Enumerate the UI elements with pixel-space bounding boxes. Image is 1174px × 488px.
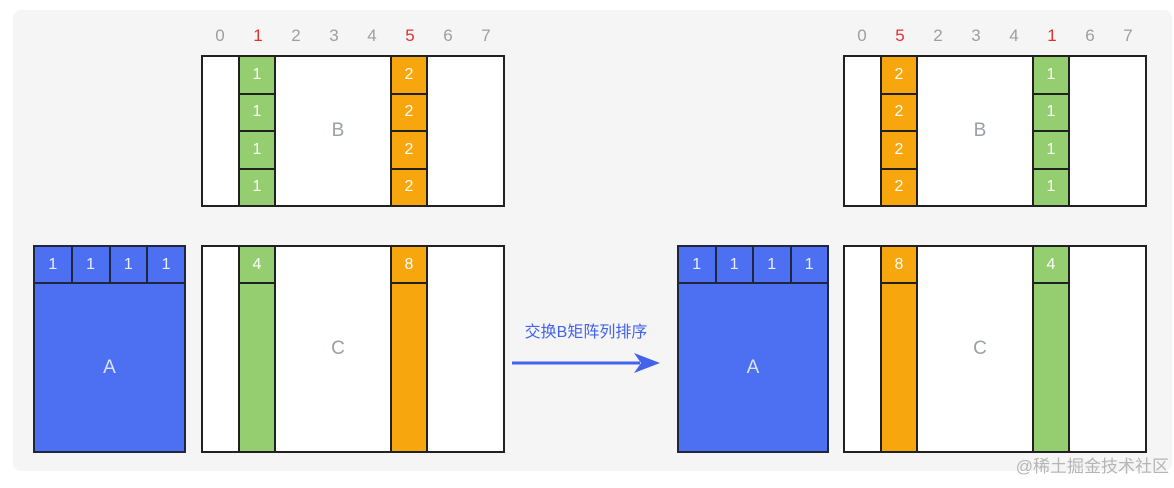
matrix-b-right-green-column: 1 1 1 1 bbox=[1032, 55, 1070, 207]
matrix-cell: 1 bbox=[1032, 168, 1070, 208]
matrix-cell: 1 bbox=[1032, 55, 1070, 95]
matrix-a-left-label: A bbox=[35, 284, 184, 451]
matrix-cell: 1 bbox=[238, 168, 276, 208]
matrix-a-left-header-row: 1 1 1 1 bbox=[33, 245, 186, 284]
right-col-index-1: 5 bbox=[881, 26, 919, 46]
matrix-cell: 2 bbox=[390, 168, 428, 208]
matrix-cell: 1 bbox=[752, 245, 792, 284]
left-col-index-0: 0 bbox=[201, 26, 239, 46]
matrix-cell: 1 bbox=[238, 93, 276, 133]
matrix-b-left-orange-column: 2 2 2 2 bbox=[390, 55, 428, 207]
matrix-cell: 1 bbox=[1032, 130, 1070, 170]
matrix-b-left-green-column: 1 1 1 1 bbox=[238, 55, 276, 207]
left-col-index-7: 7 bbox=[467, 26, 505, 46]
matrix-cell: 1 bbox=[109, 245, 149, 284]
right-col-index-4: 4 bbox=[995, 26, 1033, 46]
matrix-c-left-green-column: 4 bbox=[238, 245, 276, 453]
matrix-cell: 4 bbox=[1032, 245, 1070, 284]
matrix-c-right: 8 4 C bbox=[843, 245, 1147, 453]
matrix-cell: 2 bbox=[390, 130, 428, 170]
matrix-cell: 1 bbox=[715, 245, 755, 284]
matrix-a-right-label: A bbox=[679, 284, 827, 451]
matrix-cell: 2 bbox=[880, 130, 918, 170]
matrix-cell: 1 bbox=[238, 55, 276, 95]
matrix-column-body bbox=[1032, 282, 1070, 453]
transform-arrow-label: 交换B矩阵列排序 bbox=[508, 318, 664, 342]
matrix-cell: 1 bbox=[33, 245, 73, 284]
left-col-index-4: 4 bbox=[353, 26, 391, 46]
right-col-index-6: 6 bbox=[1071, 26, 1109, 46]
right-col-index-0: 0 bbox=[843, 26, 881, 46]
matrix-cell: 2 bbox=[880, 55, 918, 95]
right-arrow-icon bbox=[508, 348, 664, 374]
matrix-cell: 1 bbox=[790, 245, 830, 284]
matrix-column-body bbox=[238, 282, 276, 453]
left-col-index-2: 2 bbox=[277, 26, 315, 46]
left-col-index-5: 5 bbox=[391, 26, 429, 46]
matrix-cell: 1 bbox=[238, 130, 276, 170]
right-col-index-2: 2 bbox=[919, 26, 957, 46]
right-col-index-5: 1 bbox=[1033, 26, 1071, 46]
matrix-c-right-orange-column: 8 bbox=[880, 245, 918, 453]
left-col-index-3: 3 bbox=[315, 26, 353, 46]
matrix-b-left: 1 1 1 1 2 2 2 2 B bbox=[201, 55, 505, 207]
right-col-index-7: 7 bbox=[1109, 26, 1147, 46]
left-col-index-1: 1 bbox=[239, 26, 277, 46]
matrix-column-body bbox=[390, 282, 428, 453]
matrix-column-body bbox=[880, 282, 918, 453]
matrix-b-right: 2 2 2 2 1 1 1 1 B bbox=[843, 55, 1147, 207]
matrix-b-right-orange-column: 2 2 2 2 bbox=[880, 55, 918, 207]
matrix-cell: 1 bbox=[677, 245, 717, 284]
matrix-cell: 2 bbox=[880, 168, 918, 208]
matrix-cell: 1 bbox=[71, 245, 111, 284]
matrix-a-left: 1 1 1 1 A bbox=[33, 245, 186, 453]
matrix-cell: 4 bbox=[238, 245, 276, 284]
matrix-cell: 1 bbox=[146, 245, 186, 284]
watermark: @稀土掘金技术社区 bbox=[1016, 452, 1169, 477]
right-col-index-3: 3 bbox=[957, 26, 995, 46]
matrix-cell: 2 bbox=[390, 55, 428, 95]
left-col-index-6: 6 bbox=[429, 26, 467, 46]
matrix-c-right-green-column: 4 bbox=[1032, 245, 1070, 453]
matrix-cell: 8 bbox=[390, 245, 428, 284]
matrix-a-right: 1 1 1 1 A bbox=[677, 245, 829, 453]
transform-arrow: 交换B矩阵列排序 bbox=[508, 318, 664, 374]
matrix-cell: 8 bbox=[880, 245, 918, 284]
matrix-c-left-orange-column: 8 bbox=[390, 245, 428, 453]
matrix-cell: 2 bbox=[390, 93, 428, 133]
matrix-cell: 2 bbox=[880, 93, 918, 133]
matrix-a-right-header-row: 1 1 1 1 bbox=[677, 245, 829, 284]
matrix-c-left: 4 8 C bbox=[201, 245, 505, 453]
matrix-cell: 1 bbox=[1032, 93, 1070, 133]
